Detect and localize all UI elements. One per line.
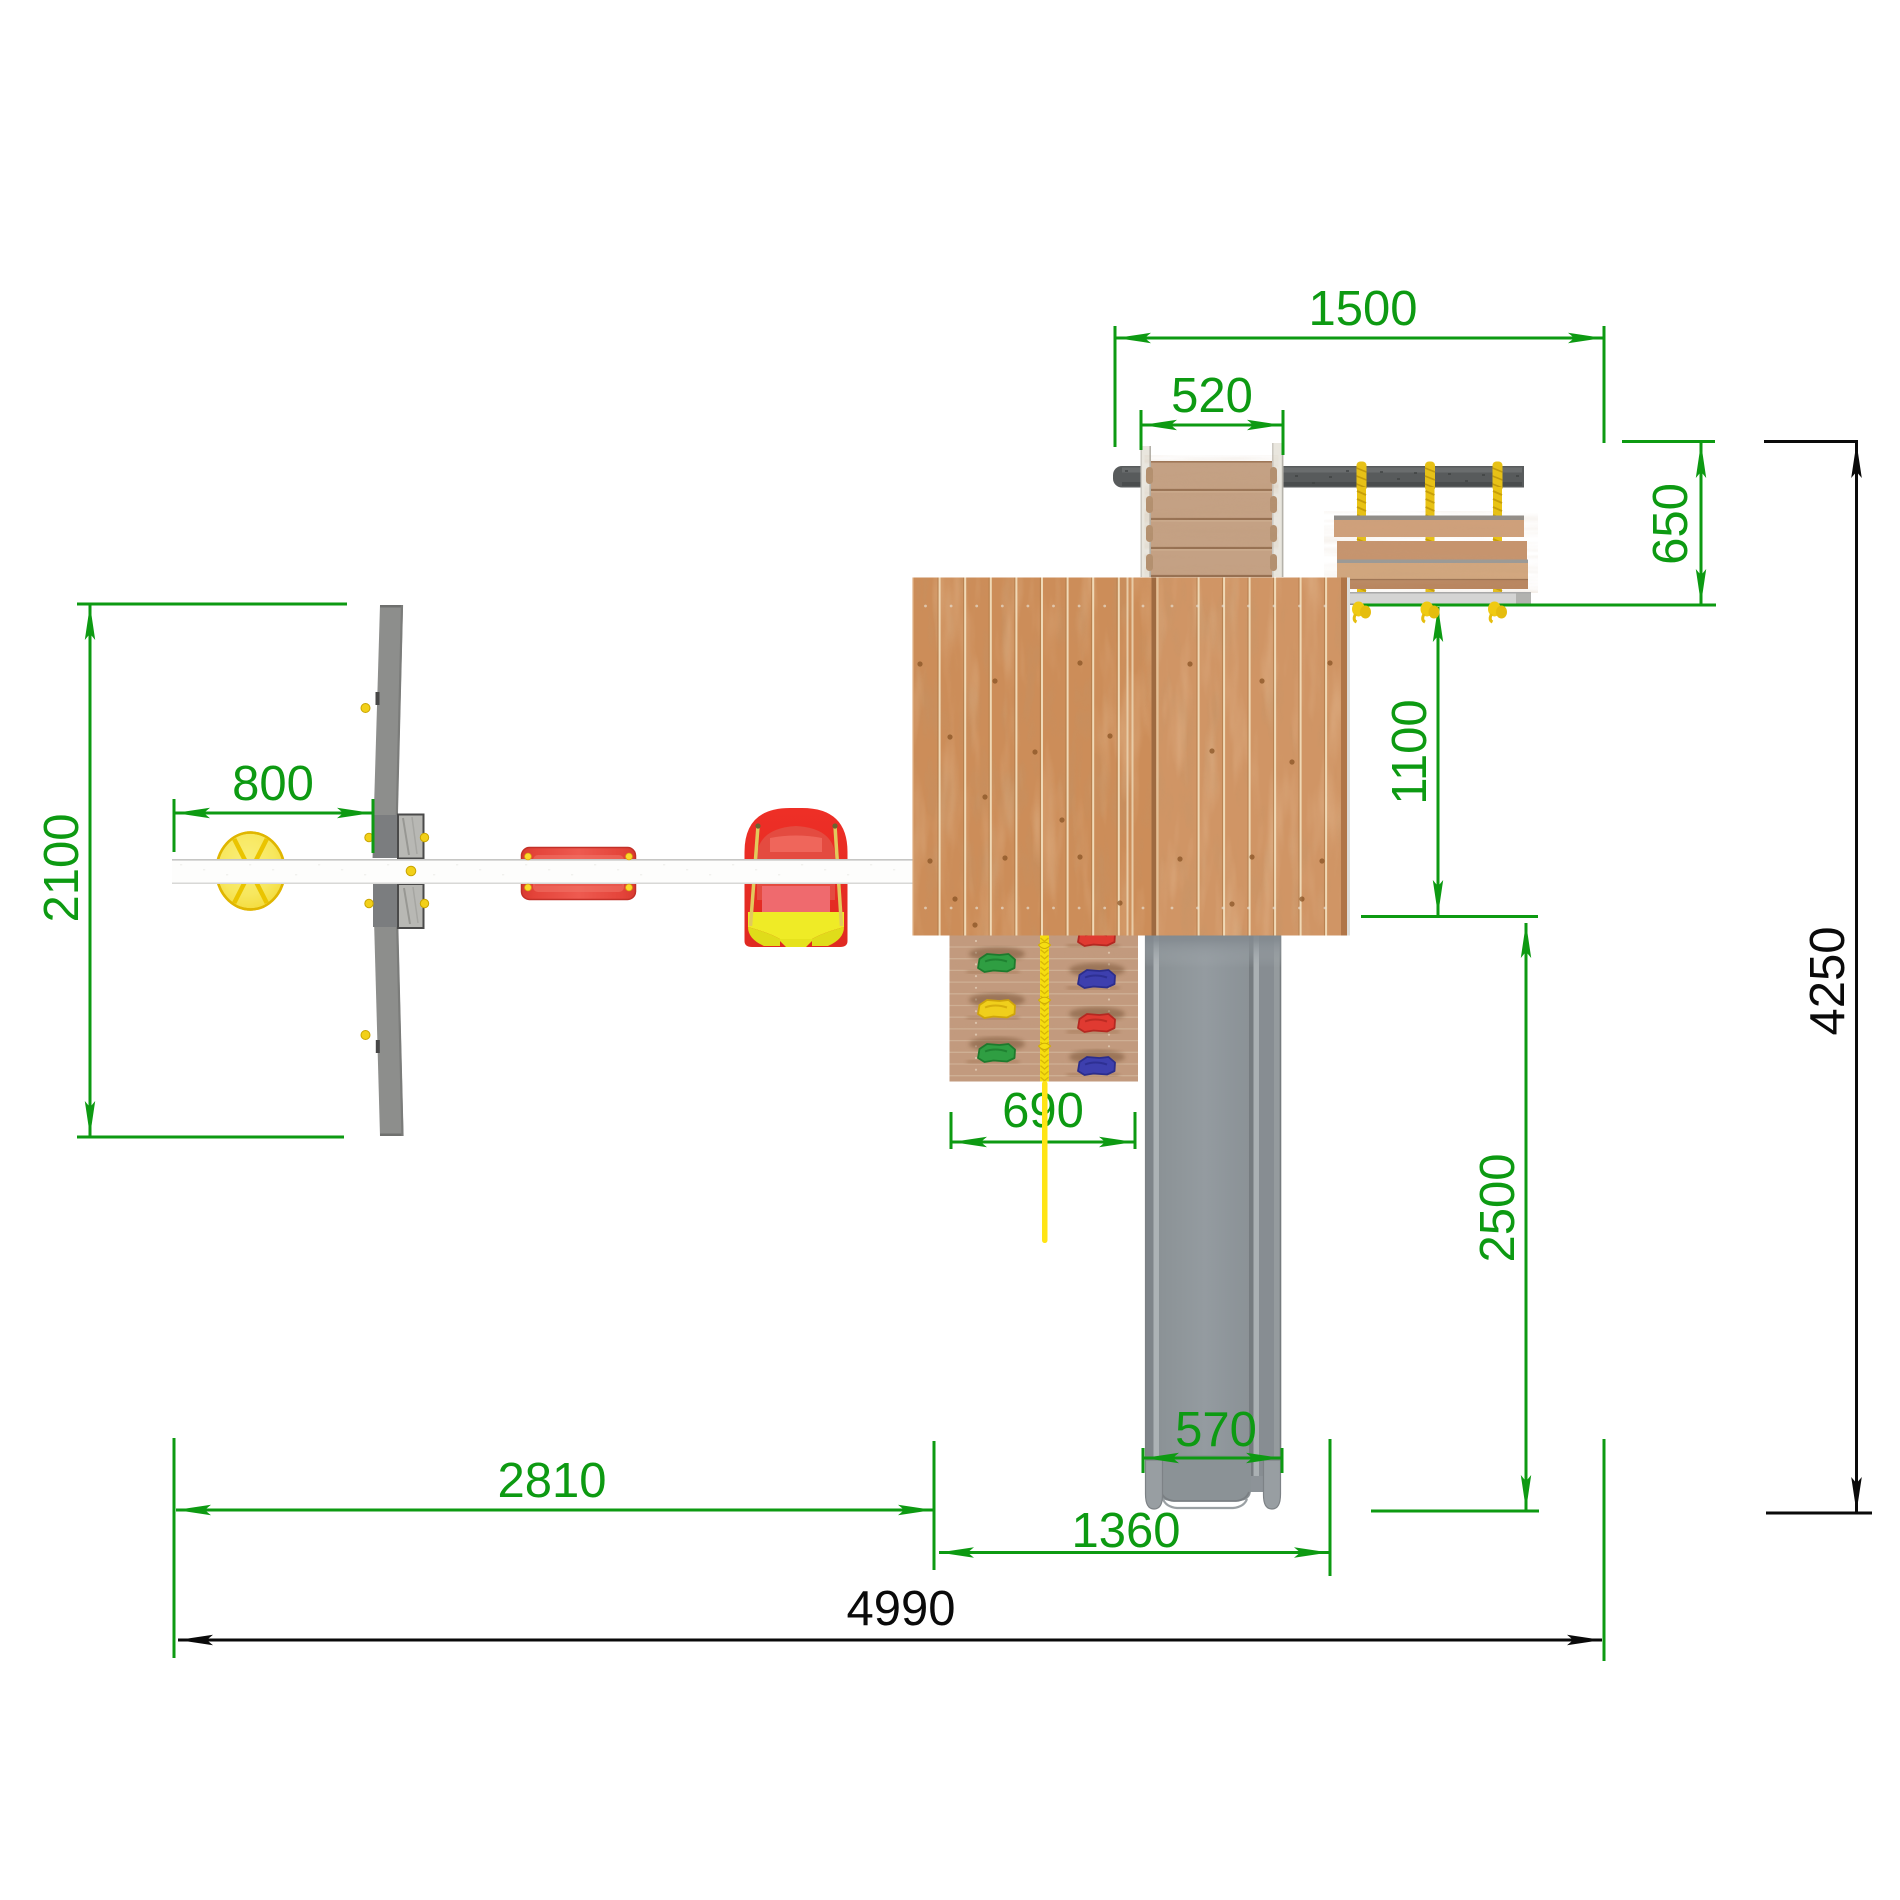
- svg-text:4990: 4990: [846, 1582, 955, 1636]
- svg-text:2100: 2100: [35, 813, 89, 922]
- svg-text:650: 650: [1644, 483, 1698, 565]
- svg-text:2500: 2500: [1471, 1153, 1525, 1262]
- svg-text:4250: 4250: [1801, 926, 1855, 1035]
- svg-text:570: 570: [1175, 1403, 1257, 1457]
- svg-text:800: 800: [232, 757, 314, 811]
- svg-text:520: 520: [1171, 369, 1253, 423]
- svg-text:2810: 2810: [497, 1454, 606, 1508]
- svg-text:1360: 1360: [1071, 1504, 1180, 1558]
- svg-text:1100: 1100: [1383, 699, 1437, 804]
- svg-text:1500: 1500: [1308, 282, 1417, 336]
